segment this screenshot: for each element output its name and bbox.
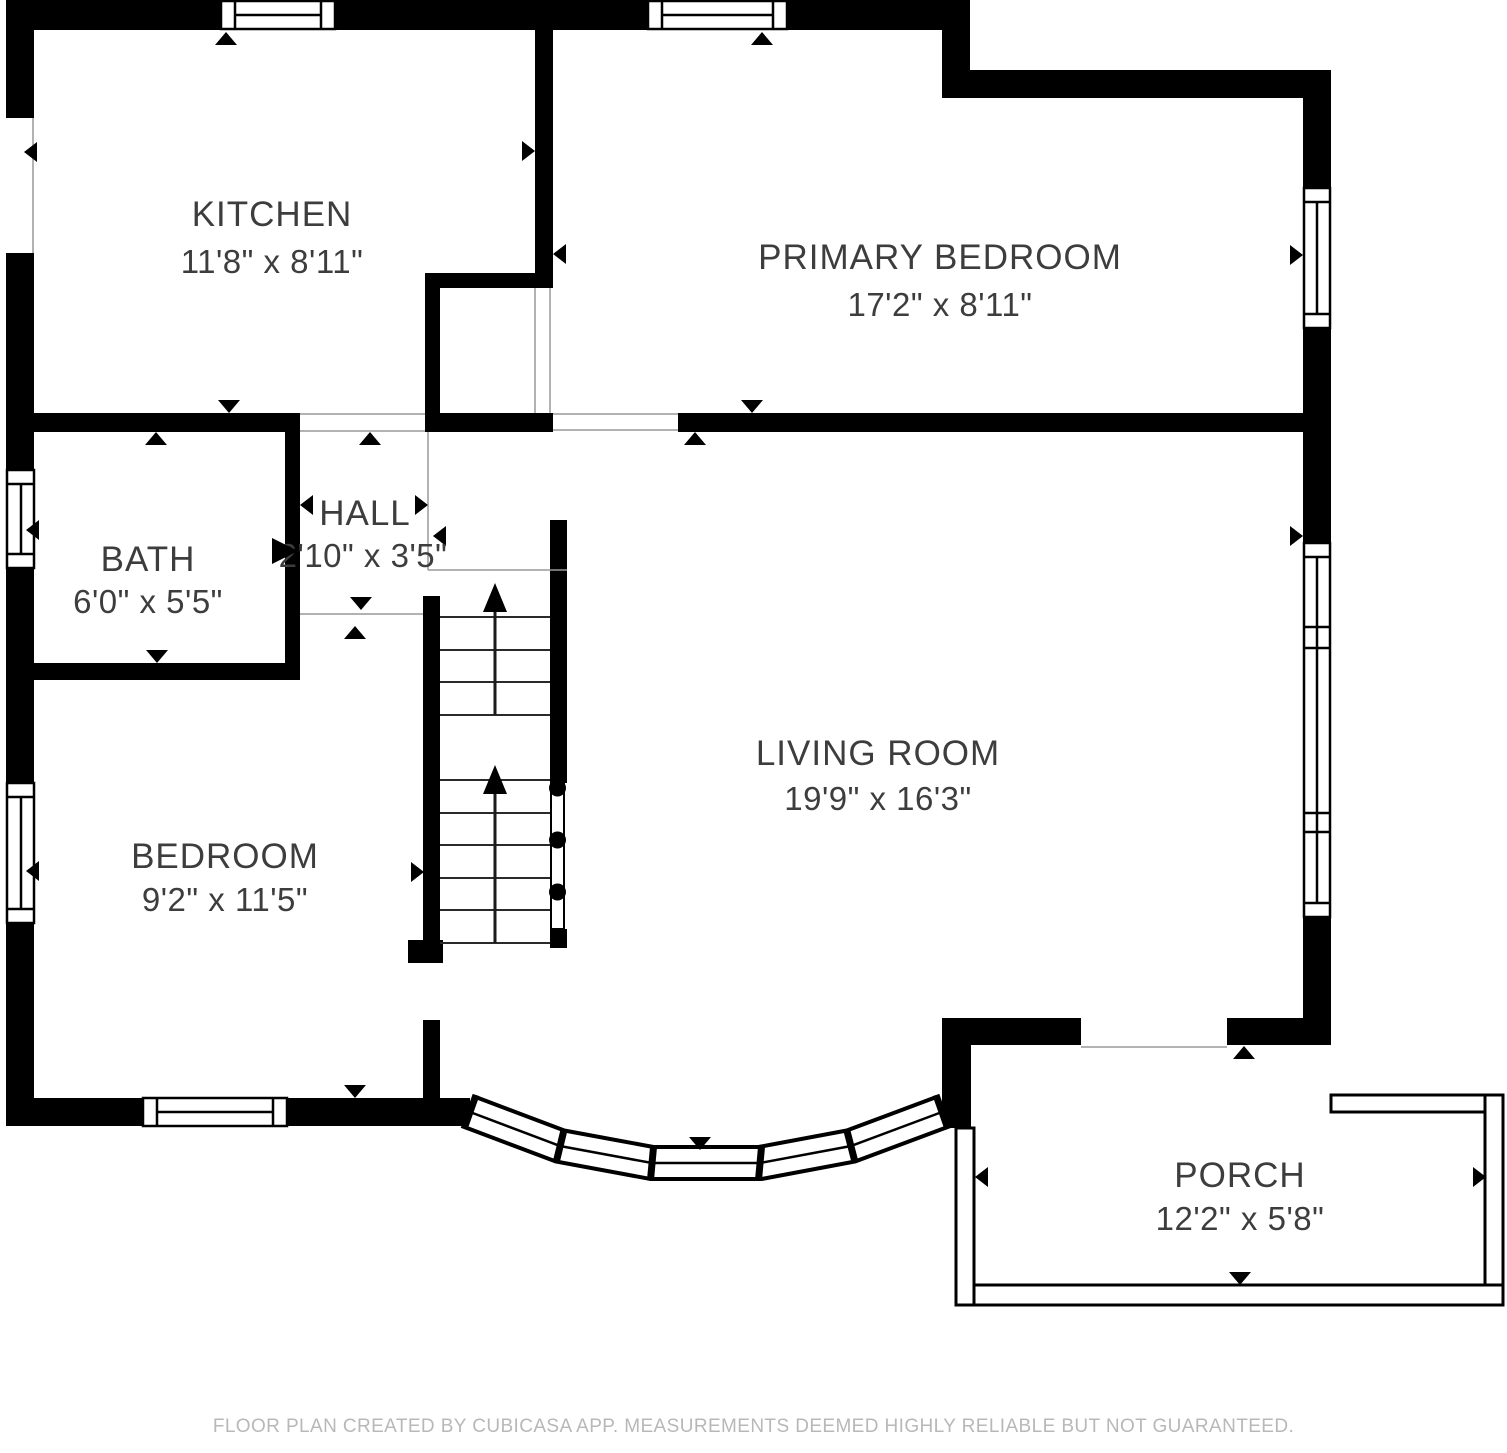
room-dims-bedroom: 9'2" x 11'5" — [142, 881, 308, 919]
exterior-walls — [6, 0, 1331, 1128]
stair-railing — [549, 780, 566, 930]
bath-window — [7, 470, 34, 568]
room-dims-porch: 12'2" x 5'8" — [1156, 1200, 1325, 1238]
bedroom-side-window — [7, 783, 34, 923]
staircase — [440, 583, 566, 943]
door-direction-arrow — [272, 538, 298, 564]
living-room-window-band — [1304, 543, 1330, 917]
room-dims-living-room: 19'9" x 16'3" — [784, 780, 971, 818]
room-dims-primary-bedroom: 17'2" x 8'11" — [847, 286, 1032, 324]
bedroom-bottom-window — [143, 1098, 287, 1126]
floor-plan-page: KITCHEN 11'8" x 8'11" PRIMARY BEDROOM 17… — [0, 0, 1507, 1453]
room-label-bedroom: BEDROOM — [131, 837, 319, 877]
room-label-primary-bedroom: PRIMARY BEDROOM — [758, 238, 1122, 278]
room-dims-kitchen: 11'8" x 8'11" — [181, 243, 364, 281]
room-label-living-room: LIVING ROOM — [756, 734, 1000, 774]
room-dims-bath: 6'0" x 5'5" — [73, 583, 223, 621]
primary-bedroom-side-window — [1304, 188, 1330, 328]
kitchen-top-window — [221, 1, 335, 29]
primary-bedroom-top-window — [648, 1, 787, 29]
room-label-porch: PORCH — [1174, 1156, 1305, 1196]
window-glyphs — [7, 1, 1330, 1126]
room-dims-hall: 2'10" x 3'5" — [279, 537, 448, 575]
footer-attribution: FLOOR PLAN CREATED BY CUBICASA APP. MEAS… — [0, 1416, 1507, 1438]
room-label-bath: BATH — [101, 540, 196, 580]
room-label-hall: HALL — [319, 494, 411, 534]
room-label-kitchen: KITCHEN — [192, 195, 353, 235]
stairs-up-arrow — [483, 583, 507, 612]
